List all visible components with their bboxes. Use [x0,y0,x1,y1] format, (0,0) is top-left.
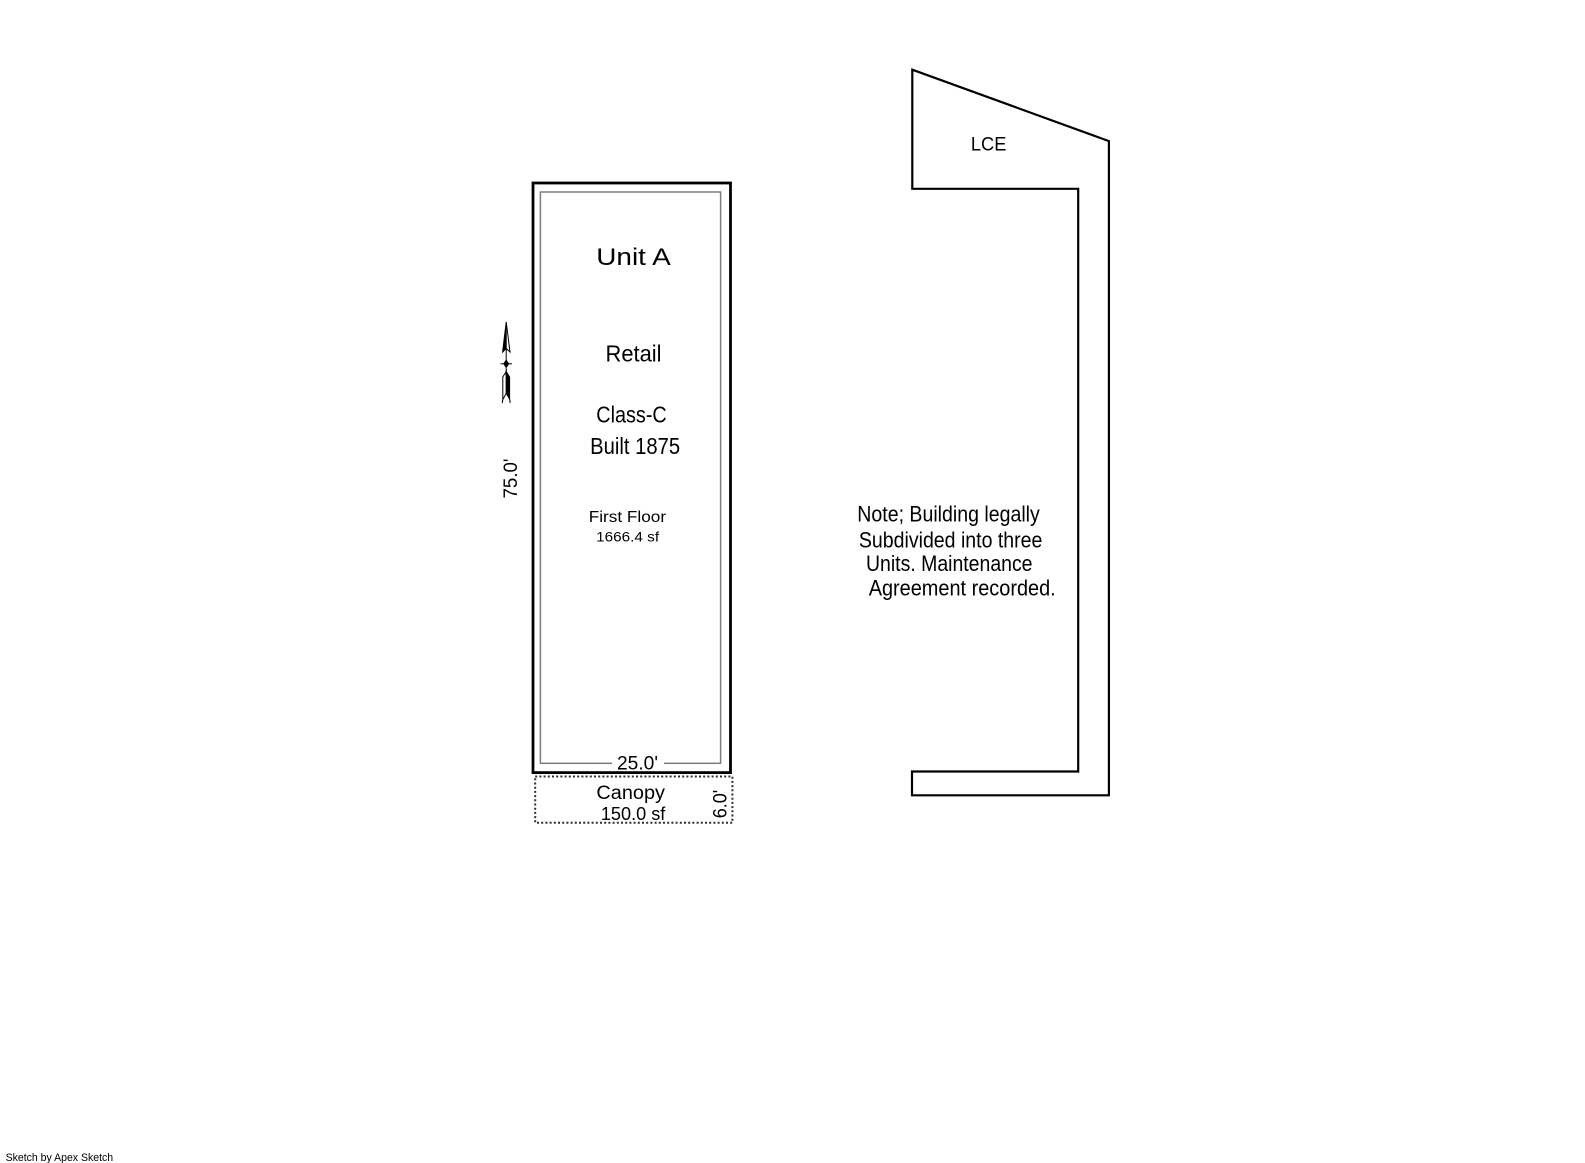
svg-text:1666.4 sf: 1666.4 sf [596,529,659,545]
svg-text:Retail: Retail [606,340,662,366]
svg-text:Note; Building legally: Note; Building legally [857,501,1040,526]
svg-text:6.0': 6.0' [711,790,732,819]
svg-text:Agreement recorded.: Agreement recorded. [869,576,1056,601]
svg-text:LCE: LCE [971,135,1007,156]
svg-text:Units. Maintenance: Units. Maintenance [866,551,1033,576]
svg-text:First Floor: First Floor [589,509,667,526]
svg-text:Unit A: Unit A [596,244,671,271]
svg-text:Subdivided into three: Subdivided into three [859,527,1043,552]
svg-text:150.0 sf: 150.0 sf [601,804,667,824]
svg-text:25.0': 25.0' [617,754,658,775]
svg-text:Built 1875: Built 1875 [590,433,680,459]
svg-text:Canopy: Canopy [596,783,665,804]
svg-text:Class-C: Class-C [596,401,667,427]
svg-text:75.0': 75.0' [501,459,522,499]
svg-text:Sketch by Apex Sketch: Sketch by Apex Sketch [6,1152,114,1163]
